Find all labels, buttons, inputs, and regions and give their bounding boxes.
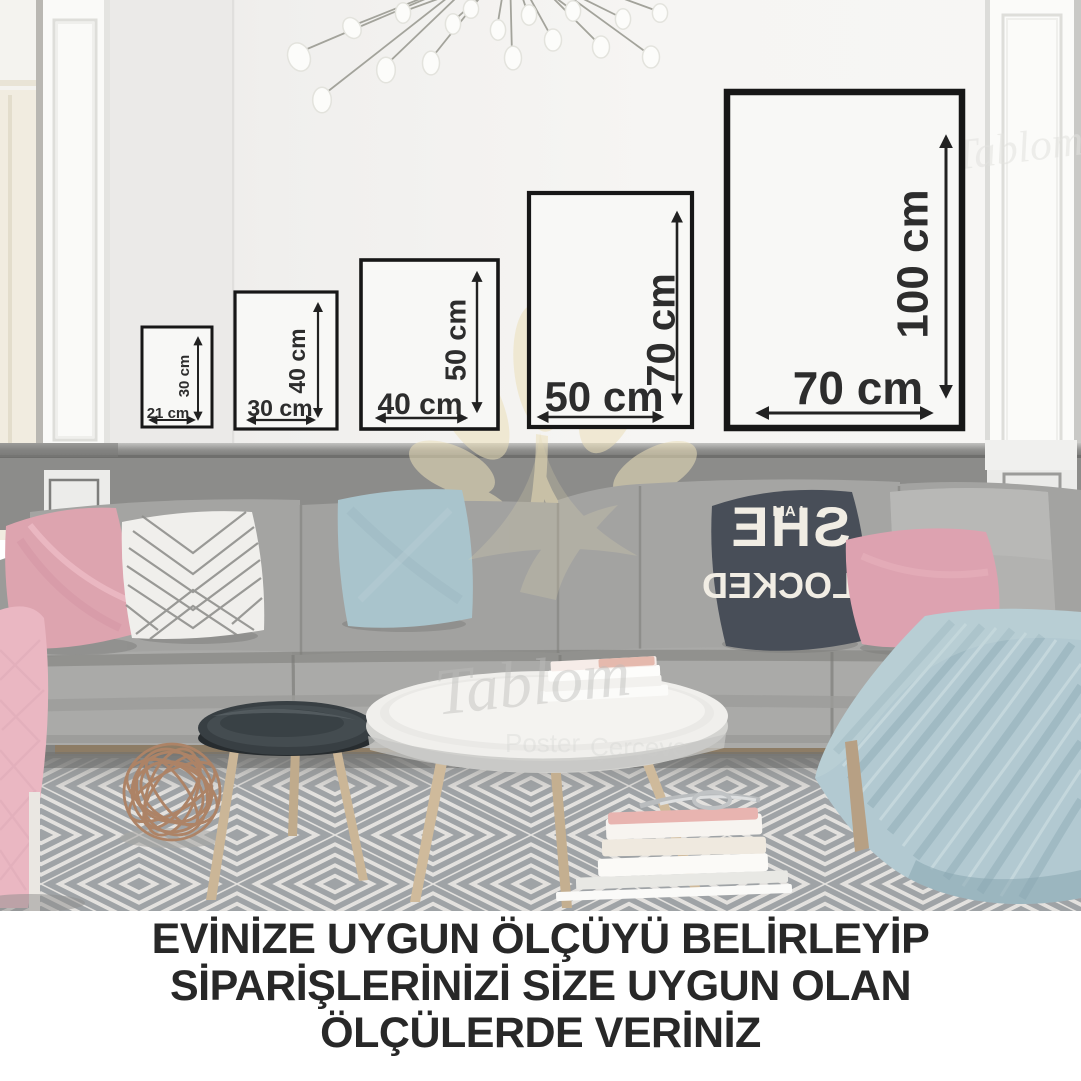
svg-text:30 cm: 30 cm bbox=[247, 395, 312, 421]
svg-text:40 cm: 40 cm bbox=[284, 328, 310, 393]
svg-text:Çerçeve: Çerçeve bbox=[590, 732, 687, 762]
svg-text:I AM: I AM bbox=[772, 503, 803, 520]
svg-text:21 cm: 21 cm bbox=[147, 405, 190, 422]
svg-text:100 cm: 100 cm bbox=[889, 189, 938, 338]
svg-text:Poster: Poster bbox=[505, 728, 580, 758]
svg-text:30 cm: 30 cm bbox=[176, 355, 193, 398]
svg-text:70 cm: 70 cm bbox=[640, 273, 684, 386]
svg-text:40 cm: 40 cm bbox=[377, 388, 462, 421]
svg-text:LOCKED: LOCKED bbox=[702, 565, 854, 606]
svg-text:70 cm: 70 cm bbox=[793, 362, 923, 414]
svg-text:50 cm: 50 cm bbox=[441, 299, 473, 381]
svg-text:50 cm: 50 cm bbox=[544, 373, 663, 420]
